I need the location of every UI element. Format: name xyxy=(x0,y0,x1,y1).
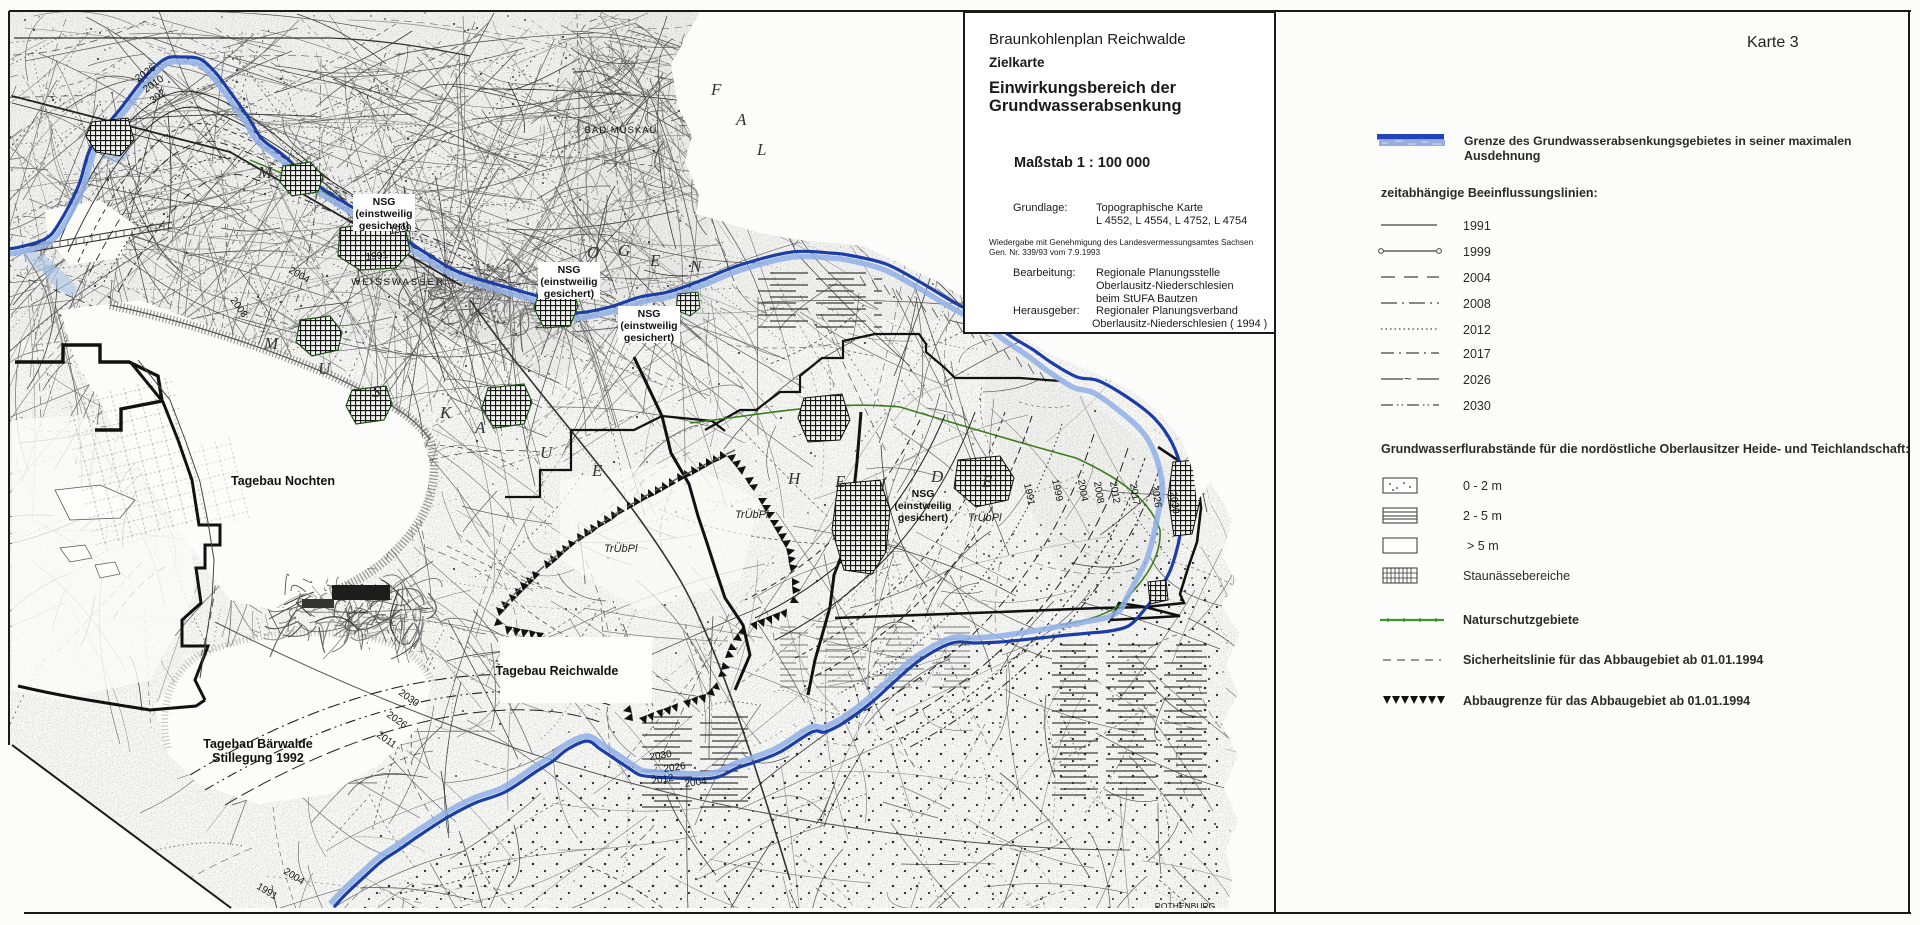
svg-text:beim StUFA Bautzen: beim StUFA Bautzen xyxy=(1096,293,1198,305)
svg-text:Karte 3: Karte 3 xyxy=(1747,34,1799,51)
svg-text:Gen. Nr. 339/93 vom 7.9.1993: Gen. Nr. 339/93 vom 7.9.1993 xyxy=(989,247,1101,257)
svg-text:M: M xyxy=(257,163,273,182)
svg-text:Tagebau Reichwalde: Tagebau Reichwalde xyxy=(496,664,619,678)
svg-text:1991: 1991 xyxy=(365,250,389,263)
svg-text:Staunässebereiche: Staunässebereiche xyxy=(1463,569,1570,583)
svg-text:(einstweilig: (einstweilig xyxy=(355,208,412,220)
svg-text:NSG: NSG xyxy=(638,308,661,320)
svg-text:TrÜbPl: TrÜbPl xyxy=(735,509,769,521)
svg-text:D: D xyxy=(930,467,944,486)
svg-text:Tagebau Nochten: Tagebau Nochten xyxy=(231,474,335,488)
svg-text:Ausdehnung: Ausdehnung xyxy=(1464,149,1540,163)
svg-text:~: ~ xyxy=(1404,371,1412,386)
svg-text:1999: 1999 xyxy=(1463,245,1491,259)
svg-text:Oberlausitz-Niederschlesien: Oberlausitz-Niederschlesien xyxy=(1096,280,1234,292)
svg-text:BAD MUSKAU: BAD MUSKAU xyxy=(585,125,658,136)
svg-text:Sicherheitslinie für das Abbau: Sicherheitslinie für das Abbaugebiet ab … xyxy=(1463,653,1763,667)
svg-text:Grundlage:: Grundlage: xyxy=(1013,202,1067,214)
svg-text:U: U xyxy=(318,359,332,378)
svg-text:2 - 5 m: 2 - 5 m xyxy=(1463,509,1502,523)
svg-text:Grundwasserabsenkung: Grundwasserabsenkung xyxy=(989,97,1182,115)
svg-text:Zielkarte: Zielkarte xyxy=(989,55,1045,70)
svg-text:Oberlausitz-Niederschlesien (: Oberlausitz-Niederschlesien ( 1994 ) xyxy=(1092,318,1267,330)
svg-text:(einstweilig: (einstweilig xyxy=(540,276,597,288)
svg-text:G: G xyxy=(618,241,630,260)
svg-text:gesichert): gesichert) xyxy=(544,288,594,300)
svg-text:Maßstab 1 : 100 000: Maßstab 1 : 100 000 xyxy=(1014,155,1150,171)
svg-text:Grundwasserflurabstände für di: Grundwasserflurabstände für die nordöstl… xyxy=(1381,442,1909,456)
svg-text:N: N xyxy=(689,257,703,276)
svg-text:gesichert): gesichert) xyxy=(898,512,948,524)
svg-text:O: O xyxy=(587,243,599,262)
svg-text:1991: 1991 xyxy=(1463,219,1491,233)
svg-text:(einstweilig: (einstweilig xyxy=(620,320,677,332)
svg-text:Tagebau Bärwalde: Tagebau Bärwalde xyxy=(203,737,313,751)
svg-text:2017: 2017 xyxy=(1463,347,1491,361)
svg-text:2008: 2008 xyxy=(1463,297,1491,311)
svg-text:WEISSWASSER: WEISSWASSER xyxy=(351,277,444,288)
svg-text:L 4552, L 4554, L 4752, L 4754: L 4552, L 4554, L 4752, L 4754 xyxy=(1096,215,1247,227)
svg-text:E: E xyxy=(834,472,846,491)
svg-text:M: M xyxy=(263,334,279,353)
svg-text:K: K xyxy=(439,403,453,422)
svg-text:Naturschutzgebiete: Naturschutzgebiete xyxy=(1463,613,1579,627)
svg-text:S: S xyxy=(372,382,381,401)
svg-text:2004: 2004 xyxy=(1463,271,1491,285)
svg-text:E: E xyxy=(591,461,603,480)
svg-text:NSG: NSG xyxy=(373,196,396,208)
svg-text:Stillegung 1992: Stillegung 1992 xyxy=(212,751,304,765)
svg-text:> 5 m: > 5 m xyxy=(1467,539,1499,553)
svg-text:L: L xyxy=(756,140,766,159)
svg-text:NSG: NSG xyxy=(558,264,581,276)
svg-text:Abbaugrenze für das Abbaugebie: Abbaugrenze für das Abbaugebiet ab 01.01… xyxy=(1463,694,1750,708)
svg-text:zeitabhängige Beeinflussungsli: zeitabhängige Beeinflussungslinien: xyxy=(1381,186,1598,200)
svg-text:2030: 2030 xyxy=(1463,399,1491,413)
svg-text:0 - 2 m: 0 - 2 m xyxy=(1463,479,1502,493)
svg-text:A: A xyxy=(474,418,486,437)
svg-text:E: E xyxy=(649,251,661,270)
svg-text:E: E xyxy=(981,472,993,491)
svg-text:U: U xyxy=(540,443,554,462)
svg-text:Einwirkungsbereich der: Einwirkungsbereich der xyxy=(989,79,1177,97)
svg-text:TrÜbPl: TrÜbPl xyxy=(604,543,638,555)
svg-text:Regionaler Planungsverband: Regionaler Planungsverband xyxy=(1096,305,1238,317)
svg-text:TrÜbPl: TrÜbPl xyxy=(968,512,1002,524)
svg-text:Grenze des Grundwasserabsenkun: Grenze des Grundwasserabsenkungsgebietes… xyxy=(1464,134,1851,148)
svg-text:F: F xyxy=(710,80,722,99)
svg-text:Topographische Karte: Topographische Karte xyxy=(1096,202,1203,214)
svg-text:Braunkohlenplan Reichwalde: Braunkohlenplan Reichwalde xyxy=(989,31,1186,48)
svg-text:Wiedergabe mit Genehmigung des: Wiedergabe mit Genehmigung des Landesver… xyxy=(989,237,1254,247)
svg-text:2026: 2026 xyxy=(1463,373,1491,387)
svg-text:2012: 2012 xyxy=(1463,323,1491,337)
svg-text:Herausgeber:: Herausgeber: xyxy=(1013,305,1080,317)
svg-text:Regionale Planungsstelle: Regionale Planungsstelle xyxy=(1096,267,1220,279)
svg-text:A: A xyxy=(735,110,747,129)
svg-text:gesichert): gesichert) xyxy=(624,332,674,344)
svg-text:Bearbeitung:: Bearbeitung: xyxy=(1013,267,1075,279)
svg-text:NSG: NSG xyxy=(912,488,935,500)
svg-text:(einstweilig: (einstweilig xyxy=(894,500,951,512)
svg-text:H: H xyxy=(787,469,802,488)
